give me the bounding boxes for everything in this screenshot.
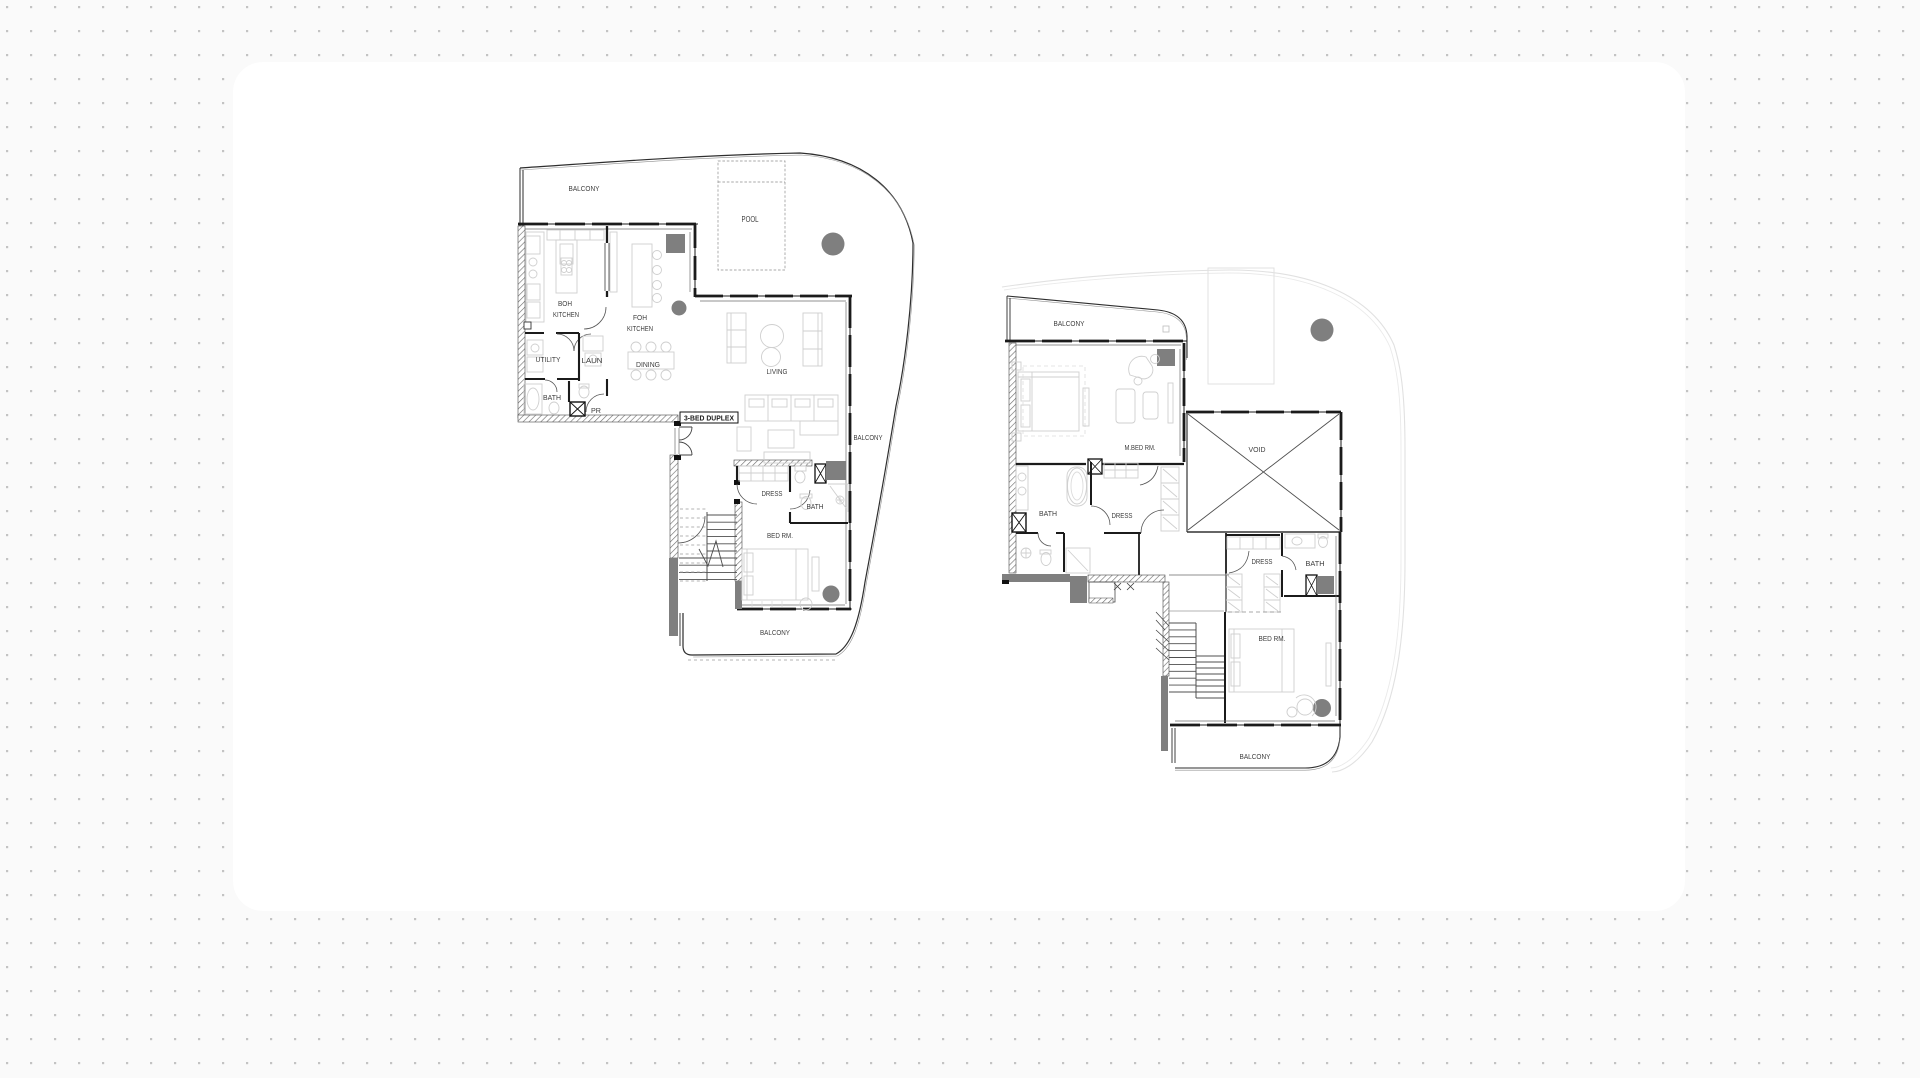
svg-text:BOH: BOH [558,299,572,308]
svg-text:DINING: DINING [636,360,660,369]
svg-text:UTILITY: UTILITY [536,355,561,364]
svg-text:DRESS: DRESS [762,489,783,498]
svg-text:LIVING: LIVING [767,367,788,376]
svg-text:3-BED DUPLEX: 3-BED DUPLEX [684,416,734,423]
svg-text:BATH: BATH [1039,509,1057,518]
svg-text:BALCONY: BALCONY [569,184,600,193]
svg-text:BATH: BATH [1306,559,1325,568]
svg-text:FOH: FOH [633,313,647,322]
svg-text:BATH: BATH [807,502,824,511]
svg-text:BALCONY: BALCONY [1240,752,1271,761]
svg-text:LAUN: LAUN [582,356,603,365]
svg-text:BATH: BATH [543,393,561,402]
svg-text:BED RM.: BED RM. [1259,634,1286,643]
svg-text:BALCONY: BALCONY [760,628,790,637]
svg-text:BED RM.: BED RM. [767,531,793,540]
svg-text:PR: PR [591,406,602,415]
svg-text:DRESS: DRESS [1252,557,1273,566]
svg-text:KITCHEN: KITCHEN [553,310,579,319]
svg-text:KITCHEN: KITCHEN [627,324,653,333]
svg-text:DRESS: DRESS [1112,511,1133,520]
svg-text:POOL: POOL [742,215,759,224]
svg-text:BALCONY: BALCONY [1054,319,1085,328]
svg-text:M.BED RM.: M.BED RM. [1125,443,1156,452]
svg-text:BALCONY: BALCONY [854,433,883,442]
svg-text:VOID: VOID [1249,445,1267,454]
